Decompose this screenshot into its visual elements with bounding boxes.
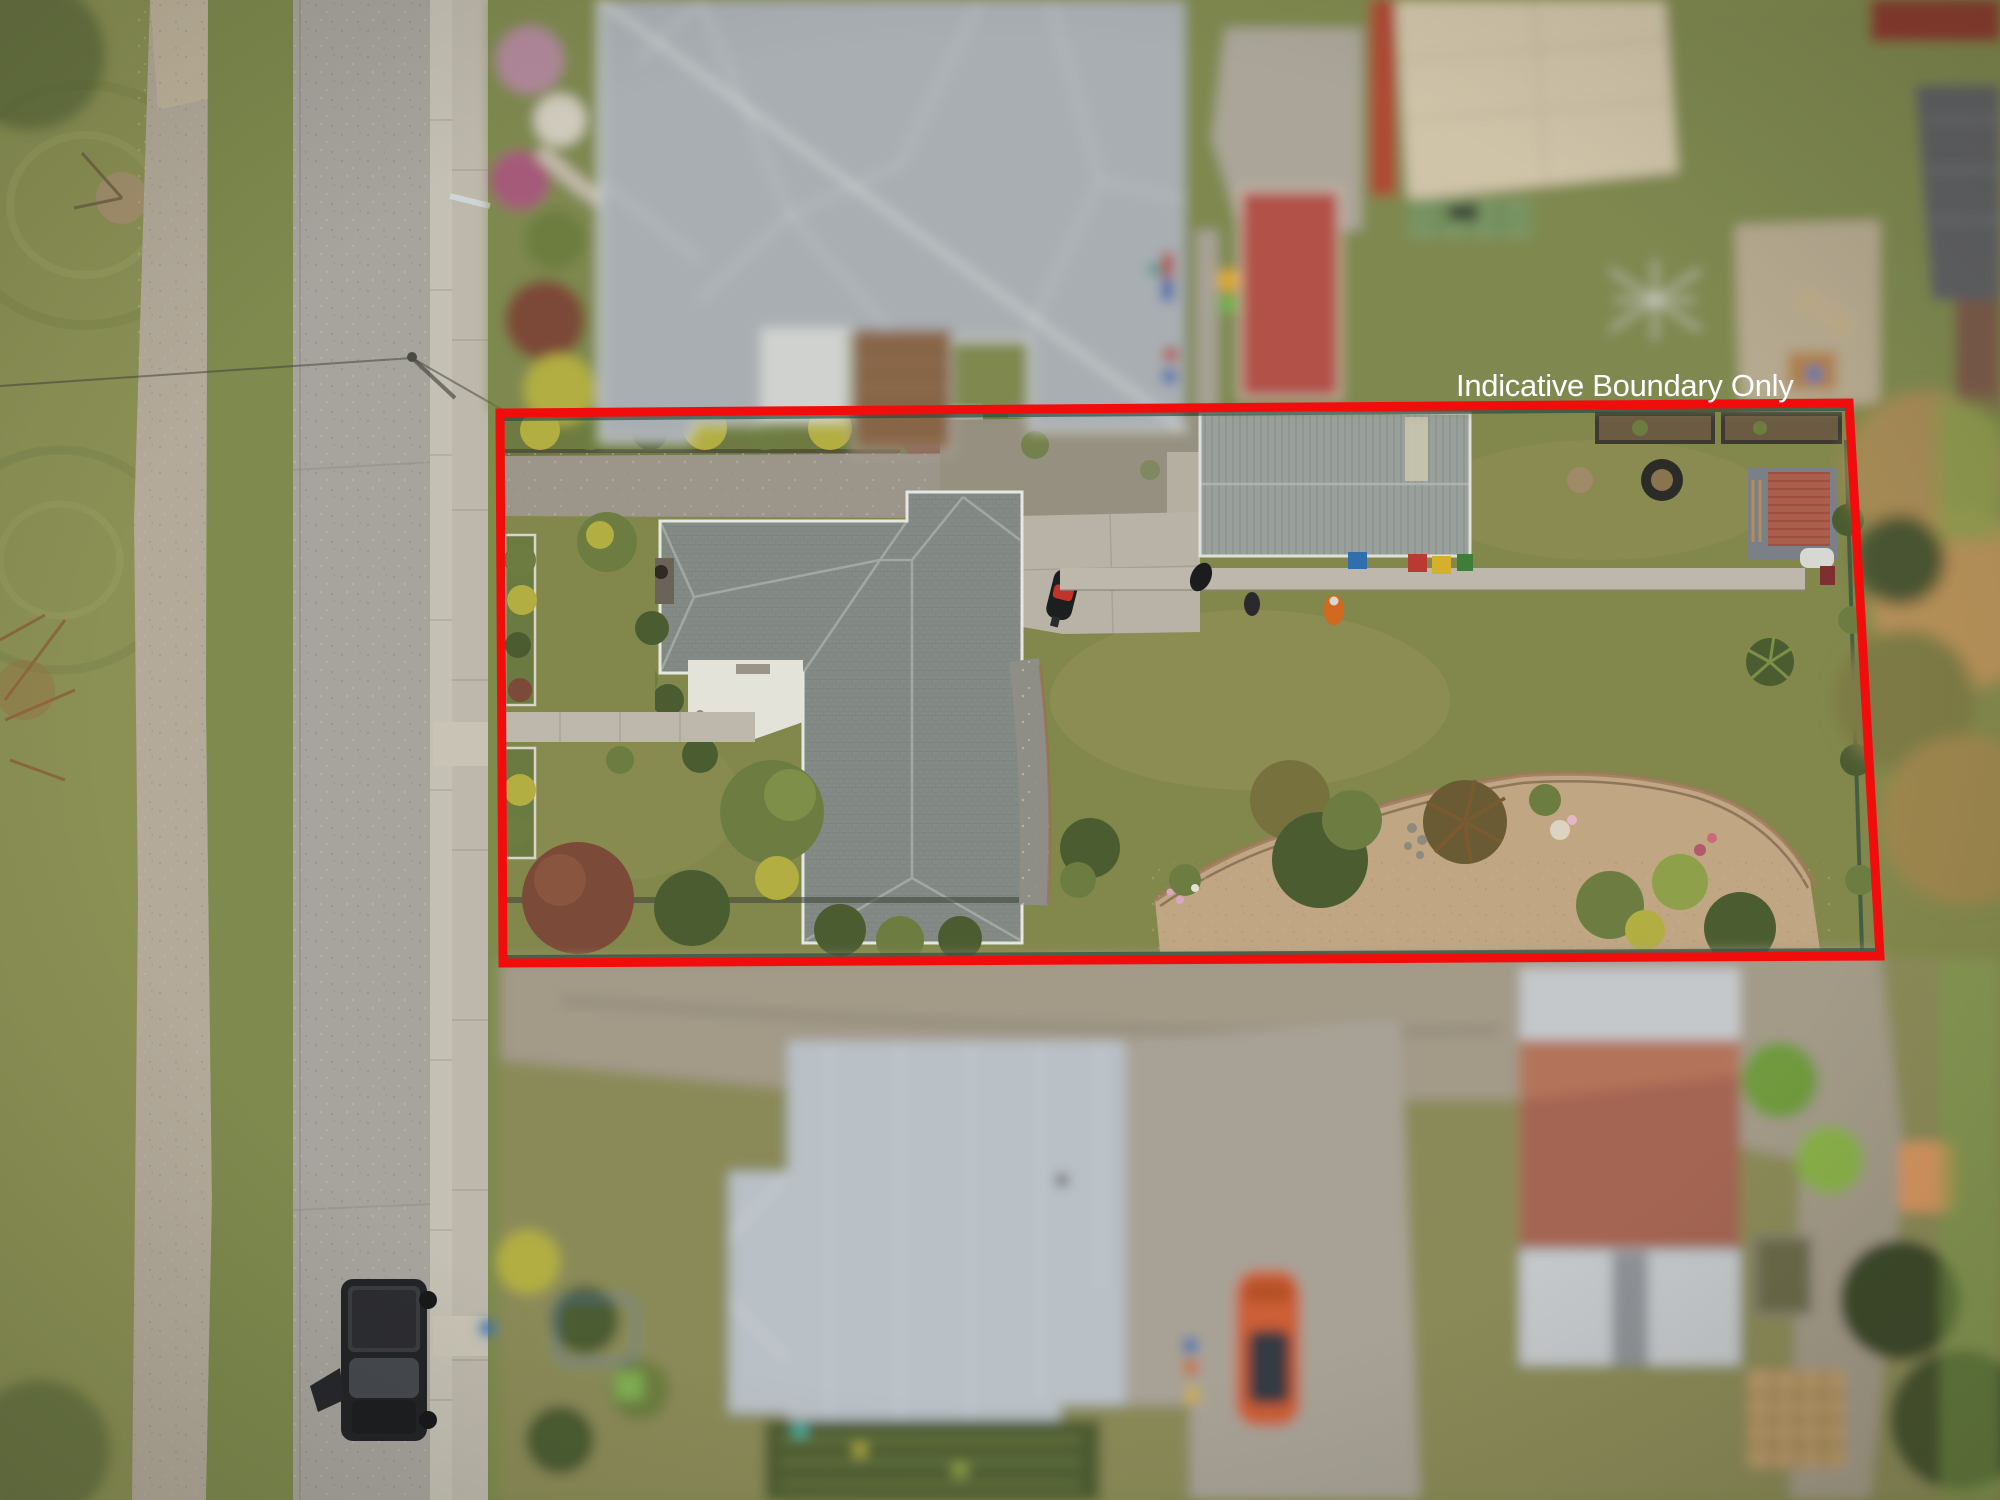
aerial-photo-canvas: Indicative Boundary Only [0, 0, 2000, 1500]
vignette [0, 0, 2000, 1500]
aerial-photo: Indicative Boundary Only [0, 0, 2000, 1500]
